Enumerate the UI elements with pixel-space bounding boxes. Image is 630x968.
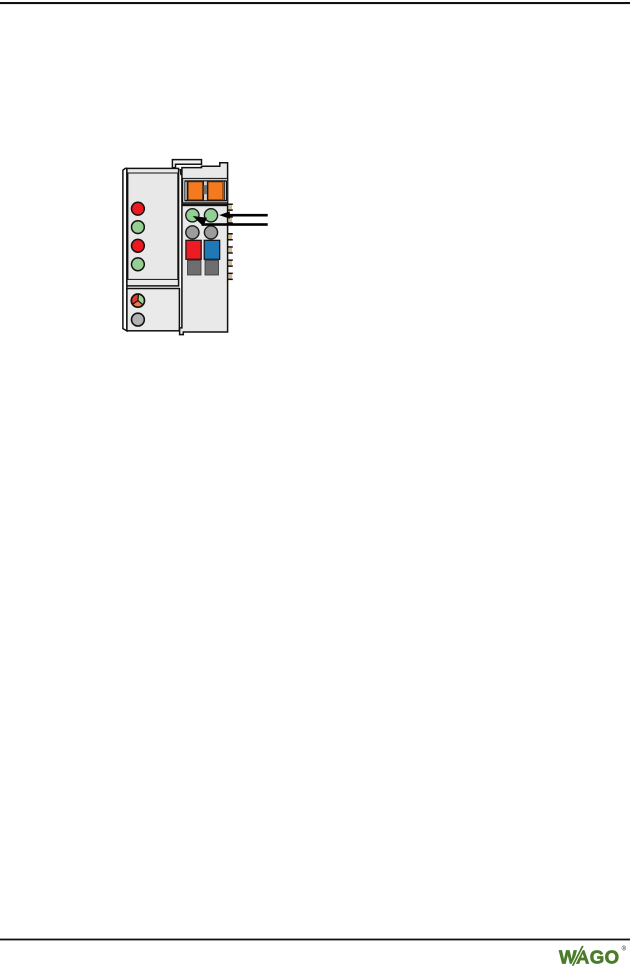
svg-text:®: ® [622, 945, 627, 952]
svg-text:WAGO: WAGO [559, 946, 619, 967]
